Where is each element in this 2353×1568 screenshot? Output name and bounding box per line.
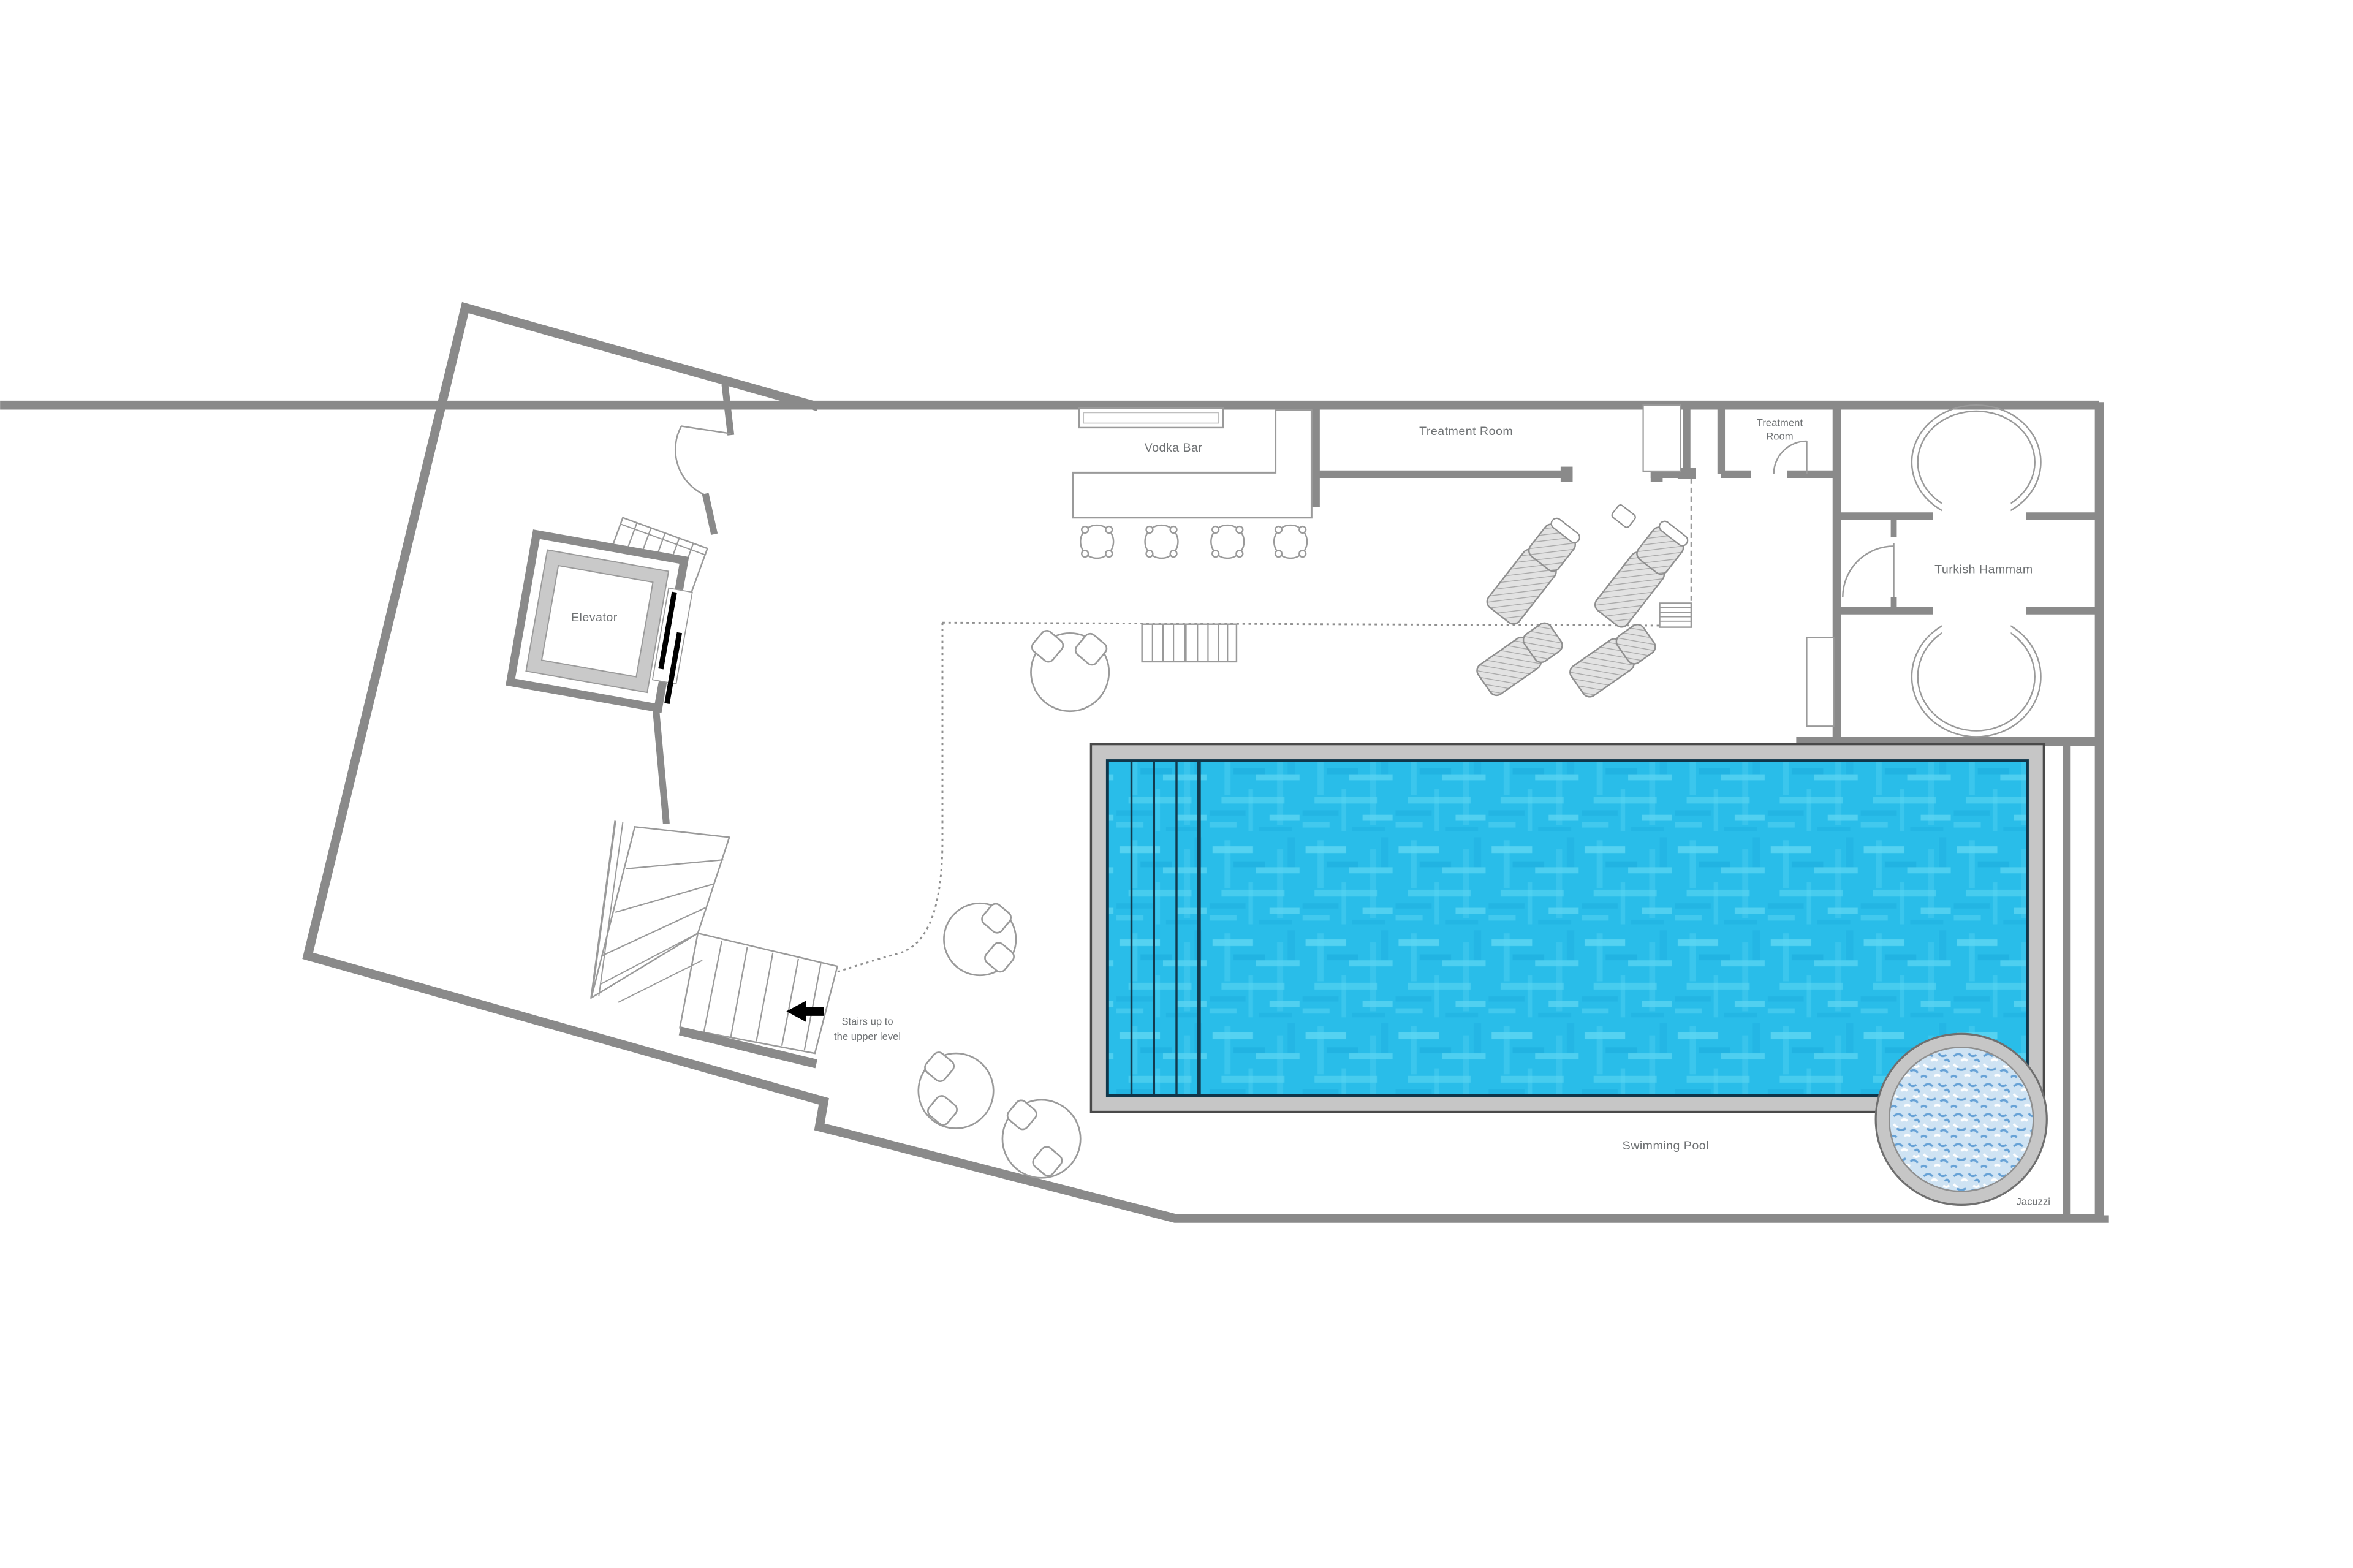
bar-back-shelf <box>1079 408 1223 428</box>
elevator-block: Elevator <box>510 534 697 824</box>
turkish-hammam: Turkish Hammam <box>1796 405 2104 741</box>
vodka-bar: Vodka Bar <box>1073 408 1311 558</box>
stairs-note-line2: the upper level <box>834 1031 901 1042</box>
table-with-chairs <box>1002 1098 1080 1178</box>
sun-lounger <box>1484 514 1584 627</box>
sun-loungers <box>1474 504 1692 700</box>
hammam-planter <box>1806 638 1833 726</box>
bar-stools <box>1080 525 1307 558</box>
stairs-note-line1: Stairs up to <box>841 1016 893 1028</box>
entry-door-leaf <box>681 426 731 433</box>
side-table <box>1611 504 1637 528</box>
terrace-tables <box>919 628 1109 1178</box>
bar-stool <box>1211 525 1244 558</box>
jacuzzi-water <box>1889 1047 2033 1191</box>
floor-plan: Elevator Vodka Bar Treatment Room T <box>0 0 2353 1568</box>
elevator-label: Elevator <box>571 611 618 624</box>
door-jamb <box>1561 467 1573 482</box>
small-treatment-label-line1: Treatment <box>1757 417 1803 428</box>
treatment-room-label: Treatment Room <box>1419 425 1513 438</box>
elevator-lobby-wall <box>656 708 666 824</box>
entry-wall-lower <box>705 494 714 534</box>
entry-wall-stub <box>725 384 731 435</box>
turkish-hammam-label: Turkish Hammam <box>1934 562 2033 576</box>
sun-lounger <box>1474 619 1566 699</box>
pool-steps <box>1142 624 1237 662</box>
main-staircase: Stairs up to the upper level <box>591 820 901 1064</box>
pool-water <box>1107 761 2027 1096</box>
small-treatment-label-line2: Room <box>1766 430 1793 442</box>
table-with-chairs <box>944 901 1016 975</box>
towel-cabinet <box>1660 603 1691 627</box>
table-with-chairs <box>1029 628 1109 711</box>
swimming-pool-label: Swimming Pool <box>1623 1139 1709 1153</box>
sun-lounger <box>1567 620 1659 700</box>
terrace-dotted-line-horizontal <box>942 623 1691 626</box>
steam-room-bottom-opening <box>1942 609 2011 636</box>
page: Elevator Vodka Bar Treatment Room T <box>0 0 2353 1568</box>
treatment-cabinet <box>1643 405 1681 471</box>
steam-room-top-opening <box>1942 498 2011 525</box>
small-treatment-door-arc <box>1774 441 1807 474</box>
hammam-vestibule-door <box>1843 516 1893 610</box>
steam-room-bottom <box>1912 609 2041 737</box>
table-with-chairs <box>919 1050 993 1129</box>
bar-stool <box>1080 525 1113 558</box>
terrace-dotted-curve <box>836 623 942 972</box>
steam-room-top <box>1912 405 2041 525</box>
bar-stool <box>1145 525 1178 558</box>
hammam-door-arc <box>1843 546 1893 597</box>
entry-door-arc <box>675 426 705 495</box>
bar-stool <box>1274 525 1307 558</box>
jacuzzi-label: Jacuzzi <box>2017 1195 2051 1207</box>
vodka-bar-label: Vodka Bar <box>1145 441 1203 455</box>
treatment-room-small: Treatment Room <box>1721 405 1837 474</box>
